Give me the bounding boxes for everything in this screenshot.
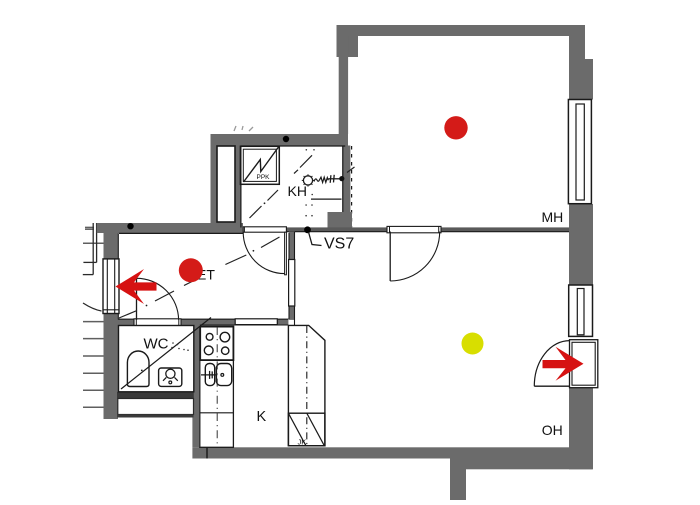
svg-text:MH: MH (542, 209, 564, 225)
svg-text:K: K (257, 409, 267, 425)
svg-text:PPK: PPK (257, 174, 271, 181)
svg-text:WC: WC (144, 335, 169, 352)
svg-text:JK: JK (298, 438, 307, 447)
svg-text:OH: OH (542, 422, 563, 438)
svg-text:VS7: VS7 (324, 235, 354, 252)
svg-text:KH: KH (288, 183, 307, 199)
